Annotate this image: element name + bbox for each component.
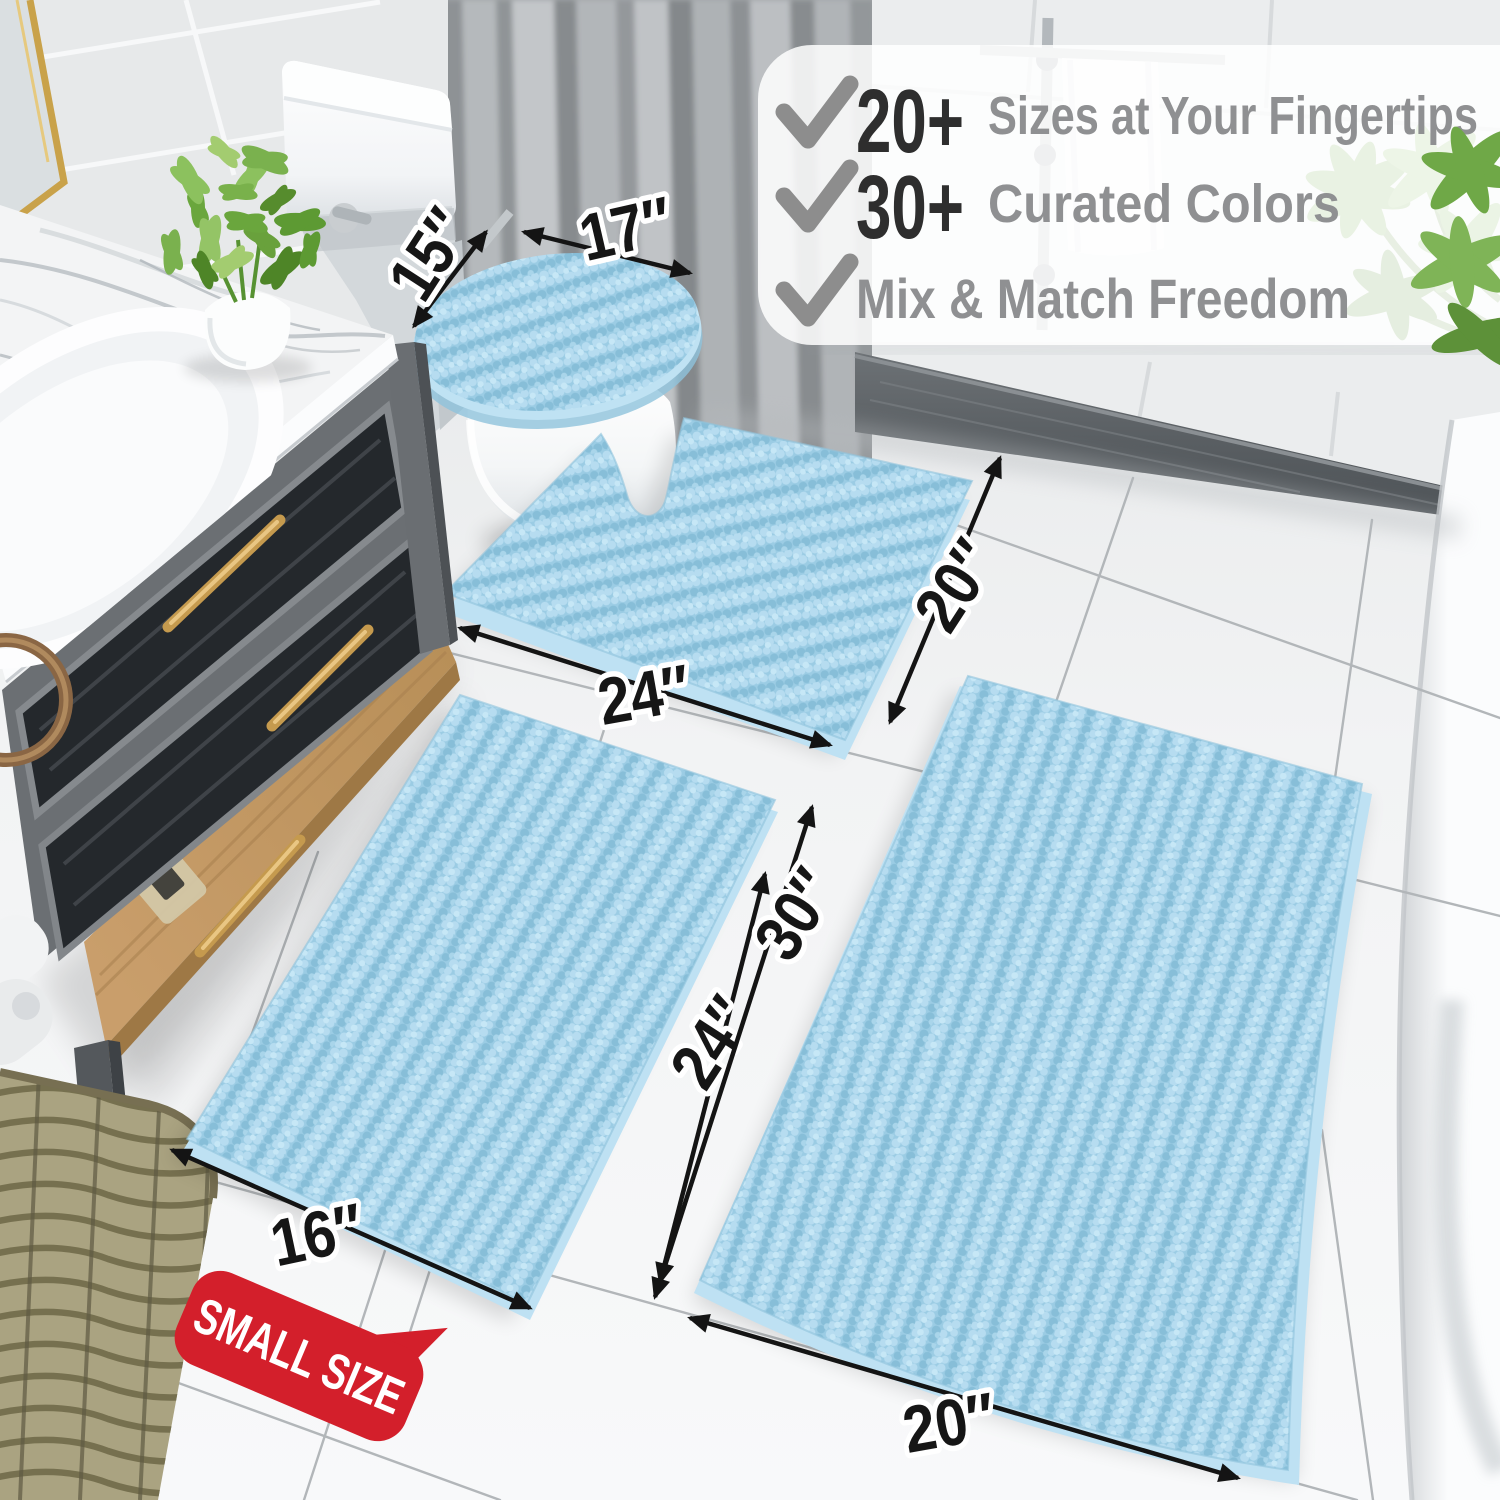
svg-text:24″: 24″ [592,650,695,739]
svg-text:20+: 20+ [856,72,964,172]
svg-text:Curated Colors: Curated Colors [988,174,1340,234]
svg-text:20″: 20″ [897,1378,1000,1467]
svg-text:30+: 30+ [856,158,964,258]
svg-text:Sizes at Your Fingertips: Sizes at Your Fingertips [988,86,1478,146]
svg-text:Mix & Match Freedom: Mix & Match Freedom [856,267,1350,330]
